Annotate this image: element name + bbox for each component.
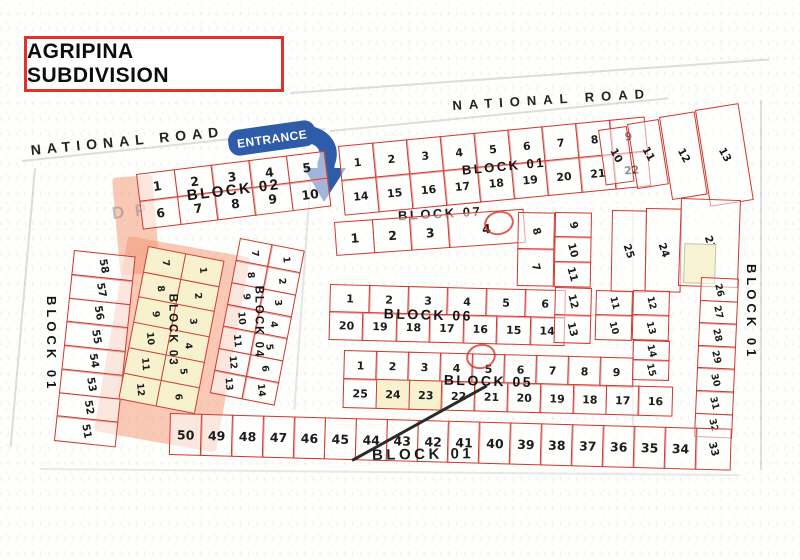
lot-number: 18 <box>488 176 504 190</box>
lot-number: 9 <box>567 220 580 230</box>
map-title: AGRIPINA SUBDIVISION <box>27 40 281 88</box>
lot-number: 14 <box>644 343 658 359</box>
lot-50: 50 <box>169 413 203 456</box>
lot-10: 10 <box>289 178 332 212</box>
lot-number: 55 <box>89 329 103 345</box>
lot-10: 10 <box>554 236 591 263</box>
lot-number: 8 <box>581 365 589 378</box>
lot-number: 25 <box>352 387 368 400</box>
lot-20: 20 <box>329 311 365 341</box>
lot-3: 3 <box>409 214 451 251</box>
lot-25: 25 <box>342 378 377 409</box>
lot-number: 7 <box>529 262 542 272</box>
lot-number: 21 <box>484 390 500 403</box>
lot-number: 19 <box>522 173 538 187</box>
scan-line <box>290 59 769 94</box>
block06-label: BLOCK 06 <box>384 306 474 324</box>
lot-7: 7 <box>541 123 580 162</box>
lot-number: 1 <box>197 267 209 275</box>
lot-number: 56 <box>91 305 105 321</box>
lot-number: 5 <box>177 368 189 376</box>
lot-23: 23 <box>408 380 443 411</box>
lot-6: 6 <box>139 196 182 230</box>
lot-number: 20 <box>556 169 572 183</box>
lot-number: 33 <box>706 441 721 458</box>
lot-number: 10 <box>607 320 621 336</box>
lot-1: 1 <box>329 284 371 314</box>
block05-label: BLOCK 05 <box>444 371 534 389</box>
block06-ext-col-left: 87 <box>517 212 555 287</box>
lot-14: 14 <box>241 376 279 406</box>
lot-number: 2 <box>389 360 397 373</box>
lot-number: 15 <box>386 186 402 200</box>
lot-16: 16 <box>638 386 673 417</box>
lot-number: 54 <box>86 352 100 368</box>
lot-number: 14 <box>539 325 555 338</box>
block03-label: BLOCK 03 <box>166 294 178 367</box>
lot-number: 38 <box>548 437 566 452</box>
lot-number: 12 <box>644 296 658 312</box>
block06: 123456 20191817161514 BLOCK 06 <box>329 284 566 346</box>
lot-number: 6 <box>522 139 531 153</box>
lot-number: 10 <box>608 146 625 165</box>
lot-49: 49 <box>200 414 234 457</box>
lot-number: 15 <box>506 324 522 337</box>
lot-number: 36 <box>610 439 628 454</box>
lot-number: 46 <box>301 430 319 445</box>
lot-number: 10 <box>565 241 580 258</box>
lot-number: 12 <box>675 146 693 165</box>
lot-number: 8 <box>244 271 256 279</box>
lot-1: 1 <box>338 143 377 182</box>
lot-number: 17 <box>439 322 455 335</box>
lot-number: 14 <box>254 384 266 398</box>
lot-1: 1 <box>343 350 378 381</box>
lot-number: 7 <box>159 260 171 268</box>
lot-number: 4 <box>182 343 194 351</box>
lot-number: 1 <box>346 292 354 305</box>
lot-20: 20 <box>544 157 583 196</box>
lot-number: 12 <box>565 293 580 310</box>
block05-ext-col-c: 1415 <box>632 340 670 381</box>
lot-48: 48 <box>231 415 265 458</box>
lot-number: 45 <box>331 431 349 446</box>
lot-18: 18 <box>572 384 607 415</box>
lot-12: 12 <box>632 290 670 317</box>
block06-ext-col-right: 91011 <box>554 212 592 288</box>
scan-line <box>760 100 762 470</box>
lot-number: 12 <box>227 356 239 370</box>
lot-number: 9 <box>613 366 621 379</box>
lot-number: 29 <box>710 350 724 365</box>
lot-number: 2 <box>388 227 398 243</box>
lot-number: 28 <box>711 327 725 342</box>
subdivision-map: AGRIPINA SUBDIVISION NATIONAL ROAD NATIO… <box>0 0 800 560</box>
lot-number: 1 <box>152 178 162 194</box>
lot-number: 13 <box>716 146 734 165</box>
lot-14: 14 <box>341 177 380 216</box>
lot-3: 3 <box>406 136 445 175</box>
lot-number: 8 <box>529 226 542 236</box>
scan-line <box>10 168 36 447</box>
lot-11: 11 <box>554 261 591 288</box>
block05-ext-col-b: 1213 <box>632 290 670 341</box>
lot-number: 10 <box>301 186 320 203</box>
lot-number: 1 <box>353 155 362 169</box>
lot-13: 13 <box>632 314 670 341</box>
lot-number: 24 <box>385 388 401 401</box>
lot-number: 51 <box>79 423 93 439</box>
lot-number: 5 <box>502 297 510 310</box>
lot-19: 19 <box>539 383 574 414</box>
block01-bottom-label: BLOCK 01 <box>372 445 474 464</box>
lot-number: 5 <box>263 343 275 351</box>
lot-16: 16 <box>409 170 448 209</box>
lot-number: 2 <box>276 277 288 285</box>
lot-13: 13 <box>554 314 592 344</box>
lot-12: 12 <box>554 287 592 317</box>
lot-number: 34 <box>672 441 690 456</box>
lot-3: 3 <box>407 352 442 383</box>
lot-number: 27 <box>712 305 726 320</box>
lot-15: 15 <box>496 316 532 346</box>
lot-number: 7 <box>556 136 565 150</box>
lot-number: 52 <box>81 400 95 416</box>
lot-number: 25 <box>621 242 637 260</box>
lot-number: 11 <box>139 357 151 371</box>
block05-ext-col-a: 1110 <box>595 290 633 341</box>
lot-2: 2 <box>372 217 414 254</box>
lot-number: 23 <box>418 389 434 402</box>
lot-45: 45 <box>323 417 357 460</box>
lot-24: 24 <box>645 208 682 293</box>
block04-label: BLOCK 04 <box>252 286 264 359</box>
lot-8: 8 <box>517 212 555 251</box>
lot-number: 11 <box>639 145 657 164</box>
lot-number: 10 <box>236 312 248 326</box>
lot-number: 19 <box>549 392 565 405</box>
lot-number: 14 <box>353 189 369 203</box>
lot-number: 39 <box>517 436 535 451</box>
lot-8: 8 <box>567 356 602 387</box>
lot-36: 36 <box>602 425 636 468</box>
lot-number: 9 <box>240 293 252 301</box>
lot-number: 2 <box>387 152 396 166</box>
lot-number: 17 <box>615 394 631 407</box>
lot-51: 51 <box>54 416 118 448</box>
lot-number: 16 <box>472 323 488 336</box>
scan-line <box>40 468 740 476</box>
lot-number: 11 <box>607 296 621 312</box>
lot-number: 18 <box>406 321 422 334</box>
lot-25: 25 <box>611 210 647 293</box>
lot-number: 47 <box>270 429 288 444</box>
block01-left-label: BLOCK 01 <box>44 296 59 416</box>
lot-24: 24 <box>375 379 410 410</box>
lot-number: 3 <box>272 299 284 307</box>
lot-number: 1 <box>350 230 360 246</box>
lot-number: 8 <box>154 285 166 293</box>
block01-corner-lot: 33 <box>695 428 732 471</box>
lot-number: 48 <box>239 428 257 443</box>
lot-number: 17 <box>454 179 470 193</box>
lot-number: 26 <box>713 282 727 297</box>
lot-15: 15 <box>632 359 670 381</box>
lot-number: 3 <box>421 149 430 163</box>
lot-9: 9 <box>599 357 634 388</box>
lot-number: 19 <box>372 320 388 333</box>
lot-number: 13 <box>644 320 658 336</box>
lot-number: 6 <box>259 365 271 373</box>
lot-number: 9 <box>149 310 161 318</box>
lot-number: 10 <box>144 332 156 346</box>
lot-number: 3 <box>425 225 435 241</box>
lot-number: 1 <box>280 255 292 263</box>
lot-number: 58 <box>96 258 110 274</box>
block01-right-column: 26272829303132 <box>694 277 739 439</box>
lot-9: 9 <box>555 212 592 239</box>
lot-number: 3 <box>421 361 429 374</box>
lot-number: 3 <box>187 317 199 325</box>
lot-23: 23 <box>678 198 741 288</box>
lot-number: 6 <box>155 205 165 221</box>
lot-11: 11 <box>595 290 633 317</box>
lot-number: 6 <box>541 298 549 311</box>
lot-number: 35 <box>641 440 659 455</box>
lot-number: 40 <box>486 435 504 450</box>
lot-number: 13 <box>565 320 580 337</box>
lot-number: 57 <box>94 281 108 297</box>
lot-number: 11 <box>231 334 243 348</box>
block05: 123456789 25242322212019181716 BLOCK 05 <box>342 350 673 417</box>
lot-number: 20 <box>516 391 532 404</box>
lot-number: 20 <box>339 319 355 332</box>
lot-number: 13 <box>223 377 235 391</box>
lot-37: 37 <box>571 424 605 467</box>
block02: 12345 678910 BLOCK 02 <box>136 151 331 230</box>
lot-number: 2 <box>192 292 204 300</box>
lot-number: 24 <box>655 241 671 259</box>
lot-number: 18 <box>582 393 598 406</box>
lot-number: 30 <box>709 373 723 388</box>
lot-34: 34 <box>664 427 698 470</box>
lot-46: 46 <box>293 416 327 459</box>
lot-number: 6 <box>172 393 184 401</box>
lot-number: 16 <box>420 183 436 197</box>
lot-number: 11 <box>565 266 580 283</box>
lot-2: 2 <box>372 139 411 178</box>
lot-38: 38 <box>540 423 574 466</box>
lot-7: 7 <box>517 248 555 287</box>
lot-number: 50 <box>177 427 195 442</box>
national-road-label-left: NATIONAL ROAD <box>30 123 225 158</box>
title-box: AGRIPINA SUBDIVISION <box>24 36 284 92</box>
lot-47: 47 <box>262 416 296 459</box>
lot-number: 4 <box>267 321 279 329</box>
lot-number: 4 <box>455 146 464 160</box>
lot-number: 5 <box>489 142 498 156</box>
lot-number: 16 <box>648 395 664 408</box>
lot-number: 7 <box>549 364 557 377</box>
lot-5: 5 <box>485 288 527 318</box>
lot-40: 40 <box>478 422 512 465</box>
lot-number: 7 <box>249 249 261 257</box>
lot-17: 17 <box>605 385 640 416</box>
lot-2: 2 <box>375 351 410 382</box>
lot-number: 53 <box>84 376 98 392</box>
lot-number: 12 <box>134 382 146 396</box>
lot-number: 49 <box>208 428 226 443</box>
lot-number: 37 <box>579 438 597 453</box>
lot-number: 5 <box>302 160 312 176</box>
lot-number: 15 <box>644 362 658 378</box>
block01-right-label: BLOCK 01 <box>744 264 759 384</box>
lot-number: 1 <box>357 359 365 372</box>
lot-1: 1 <box>334 219 376 256</box>
lot-number: 31 <box>708 395 722 410</box>
lot-10: 10 <box>595 314 633 341</box>
lot-7: 7 <box>535 355 570 386</box>
lot-35: 35 <box>633 426 667 469</box>
lot-39: 39 <box>509 423 543 466</box>
block06-side-col: 1213 <box>554 287 592 344</box>
lot-33: 33 <box>695 428 732 471</box>
